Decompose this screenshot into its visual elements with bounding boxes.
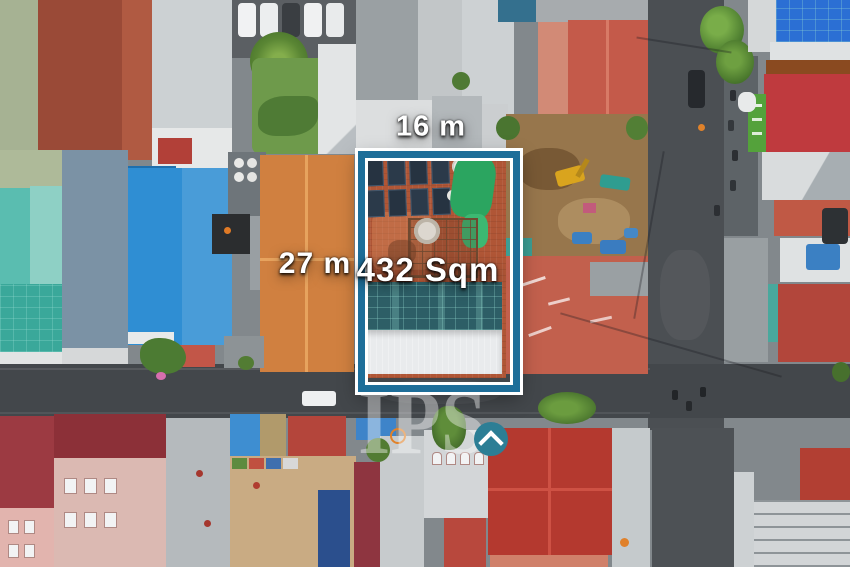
tree-street <box>538 392 596 424</box>
roof-red-hip2 <box>800 448 850 506</box>
orange-dot <box>224 227 231 234</box>
roof-blue-tiled <box>776 0 850 42</box>
window <box>64 478 77 494</box>
window <box>104 512 117 528</box>
rider-orange <box>698 124 705 131</box>
awning-text-mark <box>752 118 762 121</box>
car <box>238 3 256 37</box>
motorbike <box>732 150 738 161</box>
water-tank <box>234 158 244 168</box>
roof-grey <box>356 0 418 100</box>
motorbike <box>730 90 736 101</box>
roof-block-white-edge <box>62 348 128 364</box>
eave-white <box>770 42 850 60</box>
roof-block-sage <box>0 150 62 188</box>
roof-blue-small <box>230 414 260 456</box>
arch-window <box>474 452 484 465</box>
frontage-label: 16 m <box>396 111 466 144</box>
water-tank <box>234 172 244 182</box>
window <box>84 512 97 528</box>
tree <box>452 72 470 90</box>
building-slate <box>62 150 128 350</box>
roof-navy <box>318 490 350 567</box>
roof-block-sage <box>0 0 38 150</box>
car-dark <box>688 70 705 108</box>
plant-box <box>238 356 254 370</box>
roof-maroon-dark <box>54 414 166 458</box>
suv-dark <box>822 208 848 244</box>
bush-street <box>366 438 390 462</box>
bush-bougainvillea <box>140 338 186 374</box>
window <box>8 520 19 534</box>
building-grey <box>724 238 768 362</box>
tarp-blue <box>806 244 840 270</box>
vent-red <box>204 520 211 527</box>
roof-teal-strip <box>768 284 778 342</box>
tarp-blue <box>624 228 638 238</box>
roof-red-ridge <box>606 20 609 116</box>
rooftop-room-green <box>232 458 247 469</box>
roof-block-teal-light <box>30 186 62 284</box>
tarp-teal <box>498 0 536 22</box>
vent-red <box>196 470 203 477</box>
car <box>304 3 322 37</box>
roof-block-red-small <box>158 138 192 164</box>
roof-maroon <box>0 416 54 508</box>
motorbike <box>730 180 736 191</box>
roof-block-rust-light <box>122 0 152 160</box>
marker-orange-ring <box>390 428 406 444</box>
greenery <box>832 362 850 382</box>
window <box>24 544 35 558</box>
roof-red-small <box>444 518 486 567</box>
roof-grey-strip <box>536 0 648 22</box>
depth-label: 27 m <box>279 247 351 281</box>
roof-block-rust <box>38 0 122 163</box>
person-orange <box>620 538 629 547</box>
roof-salmon-strip <box>490 555 608 567</box>
bush-street <box>432 406 466 450</box>
arch-window <box>460 452 470 465</box>
road-patch <box>660 250 710 340</box>
roof-khaki <box>260 414 286 460</box>
tarp-blue <box>600 240 626 254</box>
building-white-slab <box>612 428 650 567</box>
motorbike <box>714 205 720 216</box>
roof-grey-big <box>762 152 850 200</box>
aerial-property-photo: 16 m 27 m 432 Sqm IPS <box>0 0 850 567</box>
rooftop-room-blue <box>266 458 281 469</box>
arch-window <box>432 452 442 465</box>
motorbike <box>672 390 678 400</box>
hip-ridge <box>488 488 612 491</box>
tree <box>496 116 520 140</box>
window <box>24 520 35 534</box>
motorbike <box>686 401 692 411</box>
roof-grey-long <box>166 418 230 567</box>
water-tank <box>247 158 257 168</box>
area-label: 432 Sqm <box>357 251 500 289</box>
facade-pink <box>0 508 54 567</box>
roof-maroon-tower <box>354 462 380 567</box>
roof-blue-highlight <box>182 168 232 345</box>
roof-red-bars <box>288 416 346 456</box>
hip-ridge <box>548 428 551 555</box>
flower-pink <box>156 372 166 380</box>
window <box>84 478 97 494</box>
motorbike <box>700 387 706 397</box>
roof-grey-ribbed-big <box>754 500 850 567</box>
vent-red <box>253 482 260 489</box>
motorbike <box>728 120 734 131</box>
machine-pink <box>583 203 596 213</box>
water-tank <box>247 172 257 182</box>
roof-crimson <box>764 74 850 152</box>
window <box>8 544 19 558</box>
hedge <box>258 96 318 136</box>
rooftop-room-red <box>249 458 264 469</box>
building-pink <box>538 22 568 114</box>
tree <box>626 116 648 140</box>
arch-window <box>446 452 456 465</box>
window <box>104 478 117 494</box>
awning-text-mark <box>752 132 762 135</box>
window <box>64 512 77 528</box>
building-white-wall <box>734 472 754 567</box>
tarp-blue <box>572 232 592 244</box>
road-vertical-lower <box>652 428 734 567</box>
car <box>326 3 344 37</box>
car-white <box>302 391 336 406</box>
roof-glass-teal <box>0 284 62 352</box>
rooftop-room-white <box>283 458 298 469</box>
umbrella-white <box>738 92 756 112</box>
band-brown <box>766 60 850 74</box>
roof-block-teal <box>0 188 30 284</box>
roof-black-hut <box>212 214 250 254</box>
roof-block-white-strip <box>0 352 62 364</box>
roof-red-corr <box>778 284 850 362</box>
